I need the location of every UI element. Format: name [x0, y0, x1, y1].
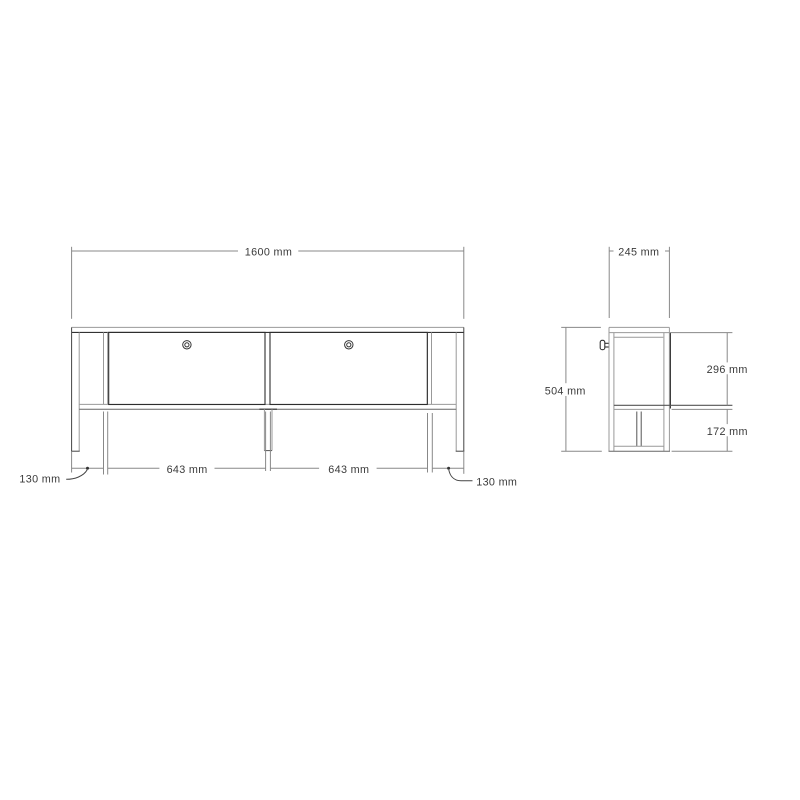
svg-text:504 mm: 504 mm	[545, 385, 586, 397]
svg-text:172 mm: 172 mm	[707, 426, 748, 438]
svg-text:643 mm: 643 mm	[328, 464, 369, 476]
svg-text:245 mm: 245 mm	[618, 246, 659, 258]
svg-text:296 mm: 296 mm	[707, 364, 748, 376]
svg-text:1600 mm: 1600 mm	[245, 246, 292, 258]
svg-text:130 mm: 130 mm	[19, 474, 60, 486]
svg-text:130 mm: 130 mm	[476, 477, 517, 489]
svg-text:643 mm: 643 mm	[167, 464, 208, 476]
